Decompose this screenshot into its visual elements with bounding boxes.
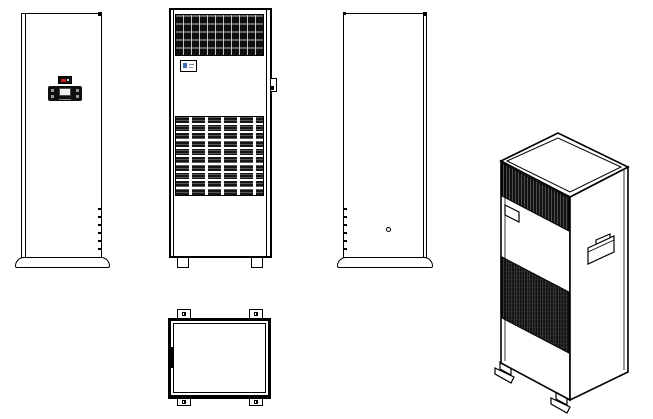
frame-inner-line — [173, 10, 174, 256]
handle-notch — [271, 86, 274, 90]
mounting-pin — [256, 313, 258, 315]
mounting-pin — [256, 401, 258, 403]
grille-view-cabinet — [169, 8, 272, 258]
side-view-base — [337, 257, 433, 268]
brand-text-line — [189, 64, 194, 65]
isometric-view — [0, 0, 653, 419]
frame-inner-line — [266, 10, 267, 256]
side-latch-mark — [169, 347, 173, 368]
top-view-outline — [168, 318, 271, 399]
lower-air-intake-grille — [175, 116, 264, 196]
top-air-outlet-grille — [175, 14, 264, 56]
brand-text-line — [189, 67, 193, 68]
brand-logo-mark — [183, 63, 187, 68]
iso-side-face — [570, 167, 628, 400]
technical-drawing-canvas — [0, 0, 653, 419]
front-panel-view-base — [15, 257, 110, 268]
door-handle — [270, 78, 277, 92]
mounting-pin — [184, 401, 186, 403]
brand-label-badge — [180, 60, 197, 72]
top-view-inner-line — [173, 323, 266, 393]
mounting-pin — [184, 313, 186, 315]
